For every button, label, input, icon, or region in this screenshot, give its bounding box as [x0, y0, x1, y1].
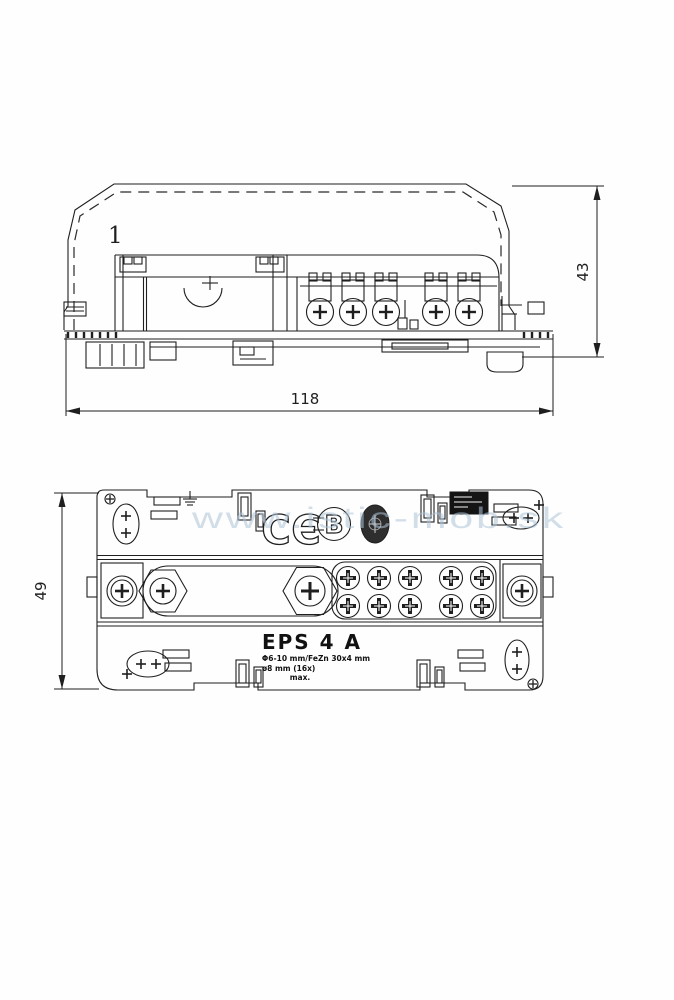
- phillips-screw-icon: [440, 595, 463, 618]
- phillips-screw-icon: [368, 567, 391, 590]
- side-tab: [87, 577, 97, 597]
- hex-terminal-large: [283, 568, 337, 615]
- phillips-screw-icon: [471, 595, 494, 618]
- cover-clip-window: [120, 257, 146, 272]
- label-rect: [460, 663, 485, 671]
- din-rail-base: [64, 296, 553, 372]
- phillips-screw-icon: [368, 595, 391, 618]
- phillips-screw-icon: [337, 567, 360, 590]
- plus-screw-icon: [512, 664, 522, 674]
- phillips-screw-icon: [337, 595, 360, 618]
- product-name: EPS 4 A: [262, 630, 362, 654]
- phillips-screw-icon: [440, 567, 463, 590]
- body-arc-notch: [184, 288, 222, 307]
- plan-view: C Є B: [32, 490, 566, 690]
- plus-screw-icon: [136, 659, 146, 669]
- part-number-label: 1: [108, 223, 123, 249]
- spec-line-2: ø8 mm (16x): [262, 664, 315, 673]
- screw-terminal-icon: [373, 273, 400, 326]
- hatch-right: [524, 332, 548, 338]
- plus-screw-icon: [151, 659, 161, 669]
- screw-terminal-icon: [423, 273, 450, 326]
- terminal-screws-front: [307, 273, 483, 326]
- label-rect: [151, 511, 177, 519]
- dim-width-label: 118: [291, 390, 320, 408]
- dimension-width: 118: [66, 334, 553, 416]
- screw-terminal-icon: [340, 273, 367, 326]
- screw-terminal-icon: [456, 273, 483, 326]
- watermark-text: www.istic-mob.sk: [191, 502, 566, 535]
- screw-terminal-icon: [507, 576, 537, 606]
- label-rect: [458, 650, 483, 658]
- label-rect: [154, 497, 180, 505]
- plus-screw-icon: [512, 647, 522, 657]
- corner-screw-icon: [105, 494, 115, 504]
- side-tab: [543, 577, 553, 597]
- phillips-screw-icon: [399, 567, 422, 590]
- spec-line-3: max.: [290, 673, 311, 682]
- foot-tab: [487, 352, 523, 372]
- dim-height-label: 43: [574, 262, 592, 281]
- plus-screw-icon: [121, 511, 131, 521]
- dimension-depth: 49: [32, 493, 99, 689]
- phillips-screw-icon: [471, 567, 494, 590]
- screw-terminal-icon: [307, 273, 334, 326]
- mid-fixture: [398, 300, 418, 329]
- device-body: [115, 255, 499, 331]
- clip-slot-icon: [435, 667, 444, 687]
- bottom-band: EPS 4 A Φ6-10 mm/FeZn 30x4 mm ø8 mm (16x…: [122, 630, 538, 689]
- terminal-band: [87, 560, 553, 623]
- dim-depth-label: 49: [32, 581, 50, 600]
- conductor-screws: [337, 567, 494, 618]
- plus-screw-icon: [121, 528, 131, 538]
- drawing-canvas: 1: [0, 0, 674, 1000]
- front-elevation-view: 1: [64, 184, 604, 416]
- corner-screw-icon: [528, 679, 538, 689]
- center-mark: [202, 276, 218, 290]
- label-rect: [163, 650, 189, 658]
- spec-line-1: Φ6-10 mm/FeZn 30x4 mm: [262, 654, 370, 663]
- technical-drawing-page: 1: [0, 0, 674, 1000]
- phillips-screw-icon: [399, 595, 422, 618]
- cover-clip-window: [256, 257, 284, 272]
- hatch-left: [68, 332, 116, 338]
- screw-terminal-icon: [107, 576, 137, 606]
